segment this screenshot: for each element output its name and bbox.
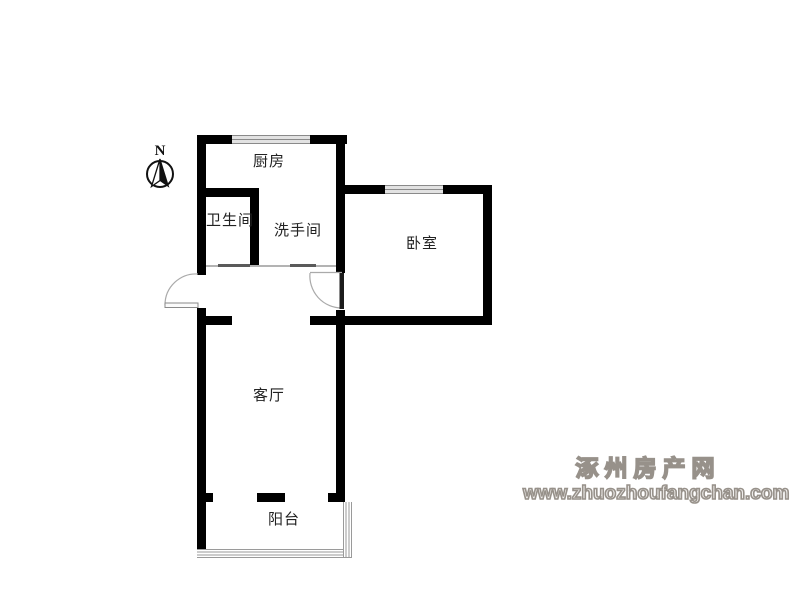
compass-north-letter: N bbox=[155, 143, 166, 159]
room-label-washroom: 洗手间 bbox=[274, 223, 322, 239]
north-compass-icon: N bbox=[142, 138, 180, 198]
kitchen-window bbox=[232, 135, 310, 144]
wall-bedroom-top-left bbox=[336, 185, 385, 194]
balcony-window-right bbox=[343, 502, 352, 557]
wall-living-right bbox=[336, 310, 345, 502]
wall-living-bottom-left-stub bbox=[197, 493, 213, 502]
entry-door-leaf bbox=[165, 303, 198, 308]
wall-left-upper bbox=[197, 135, 206, 275]
bedroom-door bbox=[305, 268, 351, 316]
entry-door bbox=[160, 270, 204, 314]
wall-left-lower bbox=[197, 308, 206, 552]
room-label-bathroom: 卫生间 bbox=[206, 213, 254, 229]
room-label-living-room: 客厅 bbox=[253, 388, 285, 404]
room-label-bedroom: 卧室 bbox=[406, 236, 438, 252]
bedroom-window bbox=[385, 185, 443, 194]
site-watermark: 涿州房产网 www.zhuozhoufangchan.com bbox=[523, 455, 773, 505]
wall-living-bottom-right bbox=[328, 493, 345, 502]
wall-hall-bottom-left bbox=[197, 316, 232, 325]
hallway-door-track-left bbox=[218, 264, 250, 267]
bedroom-door-leaf bbox=[340, 273, 345, 309]
watermark-site-name: 涿州房产网 bbox=[523, 455, 773, 481]
watermark-site-url: www.zhuozhoufangchan.com bbox=[523, 483, 773, 505]
room-label-balcony: 阳台 bbox=[268, 512, 300, 528]
room-label-kitchen: 厨房 bbox=[253, 154, 285, 170]
floorplan-canvas: N 厨房 卫生间 洗手间 卧室 客厅 阳台 涿州房产网 www.zhuozhou… bbox=[0, 0, 800, 600]
bedroom-door-swing-arc bbox=[310, 273, 342, 308]
wall-living-bottom-middle bbox=[257, 493, 285, 502]
wall-center-vertical-upper bbox=[336, 135, 345, 273]
wall-bedroom-right bbox=[483, 185, 492, 325]
entry-door-swing-arc bbox=[165, 274, 198, 305]
balcony-window-bottom bbox=[197, 549, 352, 558]
hallway-door-track-right bbox=[290, 264, 316, 267]
